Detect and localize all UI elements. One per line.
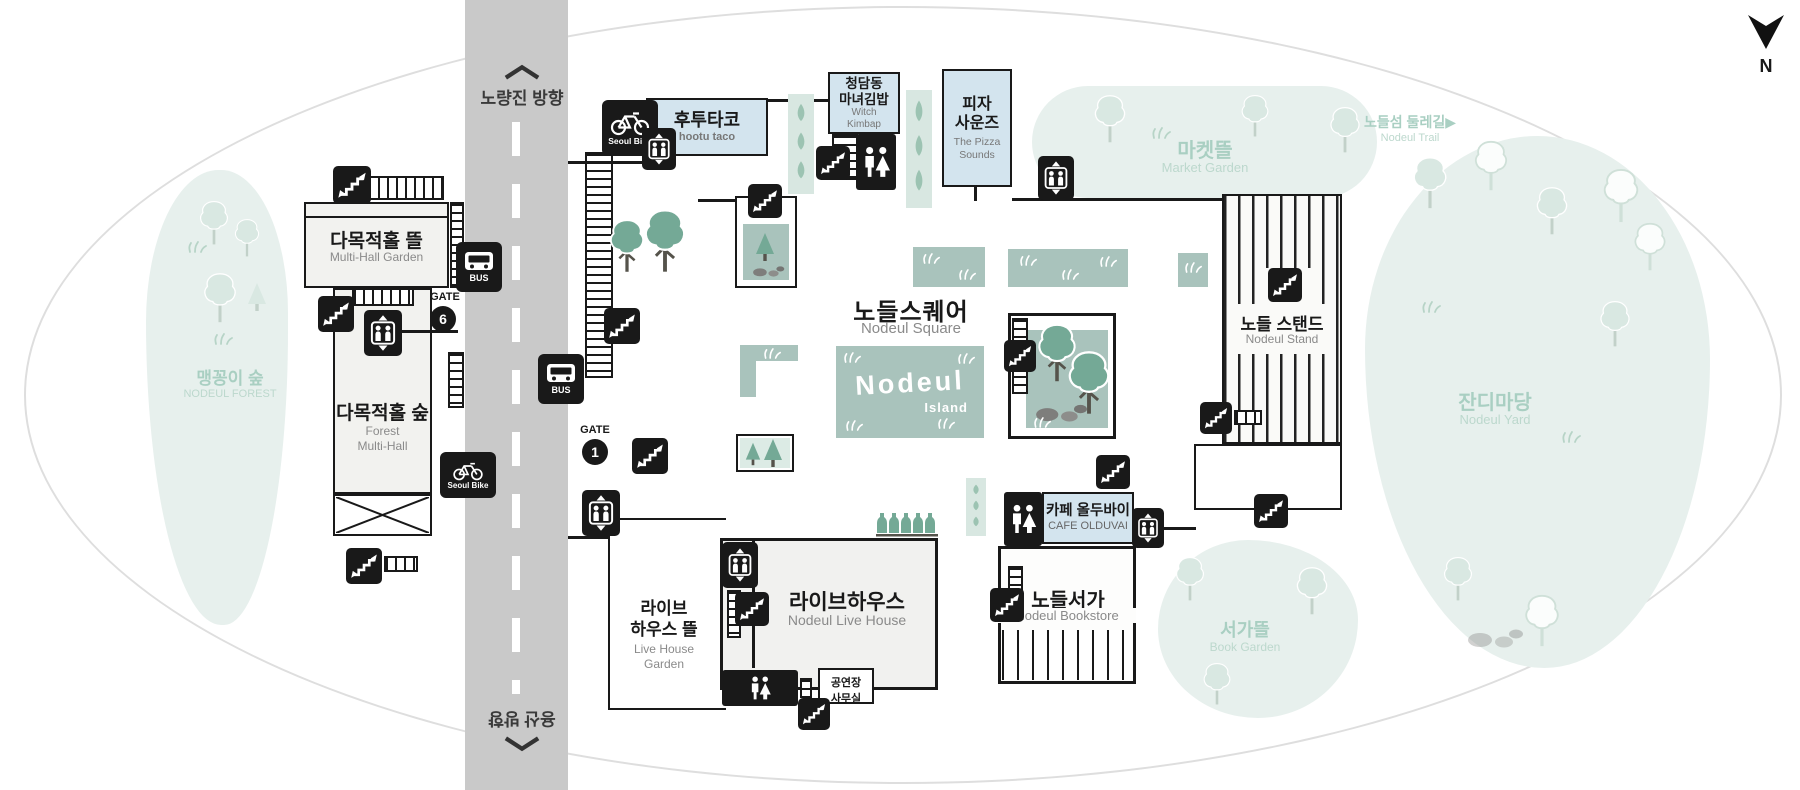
place-label-live-house-garden-en2: Garden xyxy=(608,657,720,671)
stairs-icon xyxy=(318,296,354,332)
direction-down-icon xyxy=(503,736,541,752)
place-label-pizza-en2: Sounds xyxy=(959,149,995,162)
grass-decoration xyxy=(762,347,782,360)
tree-icon xyxy=(1532,186,1572,236)
tree-icon xyxy=(246,282,268,312)
stairs-icon xyxy=(1254,494,1288,528)
planting-strip xyxy=(966,478,986,536)
place-label-pizza-ko2: 사운즈 xyxy=(955,114,999,133)
nodeul-island-logo-panel: Nodeul Island xyxy=(836,346,984,438)
place-label-market-garden-en: Market Garden xyxy=(1135,160,1275,175)
place-label-forest-multi-hall-en2: Multi-Hall xyxy=(333,439,432,453)
place-label-nodeul-forest-ko: 맹꽁이 숲 xyxy=(160,364,300,389)
building-line xyxy=(568,536,610,539)
tree-icon xyxy=(1408,156,1452,210)
restroom-icon xyxy=(722,670,798,706)
tree-icon xyxy=(1172,556,1208,602)
island-logo-line2: Island xyxy=(924,400,968,415)
building-line xyxy=(568,161,646,164)
stairs-icon xyxy=(990,588,1024,622)
direction-up-icon xyxy=(503,64,541,80)
stairs-icon xyxy=(1004,340,1036,372)
elevator-icon xyxy=(1132,508,1164,548)
elevator-icon xyxy=(1038,156,1074,200)
place-label-cafe-en: CAFE OLDUVAI xyxy=(1048,520,1128,534)
stairs-icon xyxy=(748,184,782,218)
stairs-icon xyxy=(1096,455,1130,489)
gate6-label: GATE xyxy=(420,291,470,303)
tree-icon xyxy=(744,442,762,466)
place-label-office-ko1: 공연장 xyxy=(820,674,872,690)
place-label-forest-multi-hall-en1: Forest xyxy=(333,424,432,438)
stairs-icon xyxy=(798,698,830,730)
stair-strip xyxy=(352,288,414,306)
stairs-icon xyxy=(1268,268,1302,302)
stair-strip xyxy=(384,556,418,572)
place-label-nodeul-trail-ko: 노들섬 둘레길▶ xyxy=(1340,112,1480,132)
bookstore-colonnade xyxy=(1002,630,1132,680)
place-label-multi-hall-garden-ko: 다목적홀 뜰 xyxy=(304,226,449,253)
place-label-nodeul-yard-ko: 잔디마당 xyxy=(1425,386,1565,415)
grass-patch xyxy=(1008,249,1128,287)
gate1-number: 1 xyxy=(582,439,608,465)
place-label-pizza-en1: The Pizza xyxy=(954,136,1001,149)
grass-patch xyxy=(1178,253,1208,287)
place-label-market-garden-ko: 마켓뜰 xyxy=(1135,134,1275,163)
tree-icon xyxy=(1238,94,1272,138)
gate1-label: GATE xyxy=(570,424,620,436)
place-label-nodeul-trail-en: Nodeul Trail xyxy=(1340,132,1480,144)
place-label-nodeul-yard-en: Nodeul Yard xyxy=(1425,412,1565,427)
tree-icon xyxy=(1520,594,1564,648)
island-logo-line1: Nodeul xyxy=(835,364,984,403)
tree-icon xyxy=(754,232,776,262)
place-label-witch-kimbap-ko2: 마녀김밥 xyxy=(839,92,889,108)
grass-decoration xyxy=(186,240,208,254)
tree-icon xyxy=(1090,94,1130,144)
grass-decoration xyxy=(1032,416,1052,429)
grass-decoration xyxy=(1420,300,1442,314)
gate6-number: 6 xyxy=(430,306,456,332)
elevator-icon xyxy=(642,128,676,170)
direction-bottom-label: 용산 방향 xyxy=(448,708,596,733)
building-cafe-olduvai: 카페 올두바이 CAFE OLDUVAI xyxy=(1042,492,1134,544)
stairs-icon xyxy=(604,308,640,344)
tree-icon xyxy=(1440,556,1476,602)
grass-decoration xyxy=(212,332,234,346)
stairs-icon xyxy=(816,146,850,180)
place-label-cafe-ko: 카페 올두바이 xyxy=(1046,502,1130,520)
tree-icon xyxy=(1292,566,1332,616)
place-label-nodeul-forest-en: NODEUL FOREST xyxy=(160,388,300,400)
ladder-strip xyxy=(448,352,464,408)
compass-label: N xyxy=(1744,56,1788,77)
truss-decoration xyxy=(336,497,429,533)
tree-icon xyxy=(1598,168,1644,224)
connector-line xyxy=(402,330,458,333)
planting-strip xyxy=(788,94,814,194)
building-line xyxy=(306,216,447,218)
grass-decoration xyxy=(1560,430,1582,444)
connector-line xyxy=(1160,527,1196,530)
stair-strip xyxy=(1234,410,1262,425)
rock-decoration xyxy=(1466,622,1526,648)
place-label-witch-kimbap-ko1: 청담동 xyxy=(845,76,882,92)
bus-stop-icon: BUS xyxy=(456,242,502,292)
tree-icon xyxy=(200,272,240,324)
place-label-nodeul-square-en: Nodeul Square xyxy=(831,320,991,337)
place-label-live-house-garden-ko2: 하우스 뜰 xyxy=(608,615,720,640)
compass-north-icon xyxy=(1744,10,1788,52)
ladder-strip xyxy=(800,678,812,698)
place-label-pizza-ko1: 피자 xyxy=(962,95,991,114)
tree-icon xyxy=(232,218,262,258)
tree-icon xyxy=(1630,222,1670,272)
place-label-hootu-taco-ko: 후투타코 xyxy=(674,109,740,132)
building-pizza-sounds: 피자 사운즈 The Pizza Sounds xyxy=(942,69,1012,187)
seoul-bike-icon: Seoul Bike xyxy=(440,452,496,498)
stairs-icon xyxy=(346,548,382,584)
rock-decoration xyxy=(752,262,786,277)
place-label-book-garden-ko: 서가뜰 xyxy=(1185,616,1305,642)
road-center-line xyxy=(512,122,520,694)
stairs-icon xyxy=(1200,402,1232,434)
place-label-hootu-taco-en: hootu taco xyxy=(679,131,735,145)
bus-stop-icon: BUS xyxy=(538,354,584,404)
direction-top-label: 노량진 방향 xyxy=(448,84,596,109)
place-label-live-house-en: Nodeul Live House xyxy=(758,612,936,628)
planting-strip xyxy=(906,90,932,208)
building-line xyxy=(974,187,977,201)
stairs-icon xyxy=(632,438,668,474)
stairs-icon xyxy=(735,592,769,626)
place-label-witch-kimbap-en2: Kimbap xyxy=(847,119,881,131)
place-label-book-garden-en: Book Garden xyxy=(1185,640,1305,654)
tree-icon xyxy=(640,192,690,290)
elevator-icon xyxy=(582,490,620,536)
elevator-icon xyxy=(722,542,758,588)
bottle-planters xyxy=(876,510,938,538)
elevator-icon xyxy=(364,310,402,356)
tree-icon xyxy=(1470,140,1512,192)
grass-patch xyxy=(913,247,985,287)
tree-icon xyxy=(1200,662,1234,706)
restroom-icon xyxy=(1004,492,1042,546)
planter-l-vertical xyxy=(740,345,756,397)
place-label-nodeul-stand-en: Nodeul Stand xyxy=(1222,332,1342,346)
tree-icon xyxy=(1596,300,1634,348)
nodeul-island-map: 노량진 방향 용산 방향 N 맹꽁이 숲 NODEUL FOREST 다목적홀 … xyxy=(0,0,1800,790)
place-label-witch-kimbap-en1: Witch xyxy=(852,107,877,119)
restroom-icon xyxy=(856,134,896,190)
stairs-icon xyxy=(333,166,371,204)
place-label-multi-hall-garden-en: Multi-Hall Garden xyxy=(304,250,449,264)
place-label-live-house-garden-en1: Live House xyxy=(608,642,720,656)
place-label-forest-multi-hall-ko: 다목적홀 숲 xyxy=(323,398,442,425)
building-witch-kimbap: 청담동 마녀김밥 Witch Kimbap xyxy=(828,72,900,134)
tree-icon xyxy=(762,438,784,468)
